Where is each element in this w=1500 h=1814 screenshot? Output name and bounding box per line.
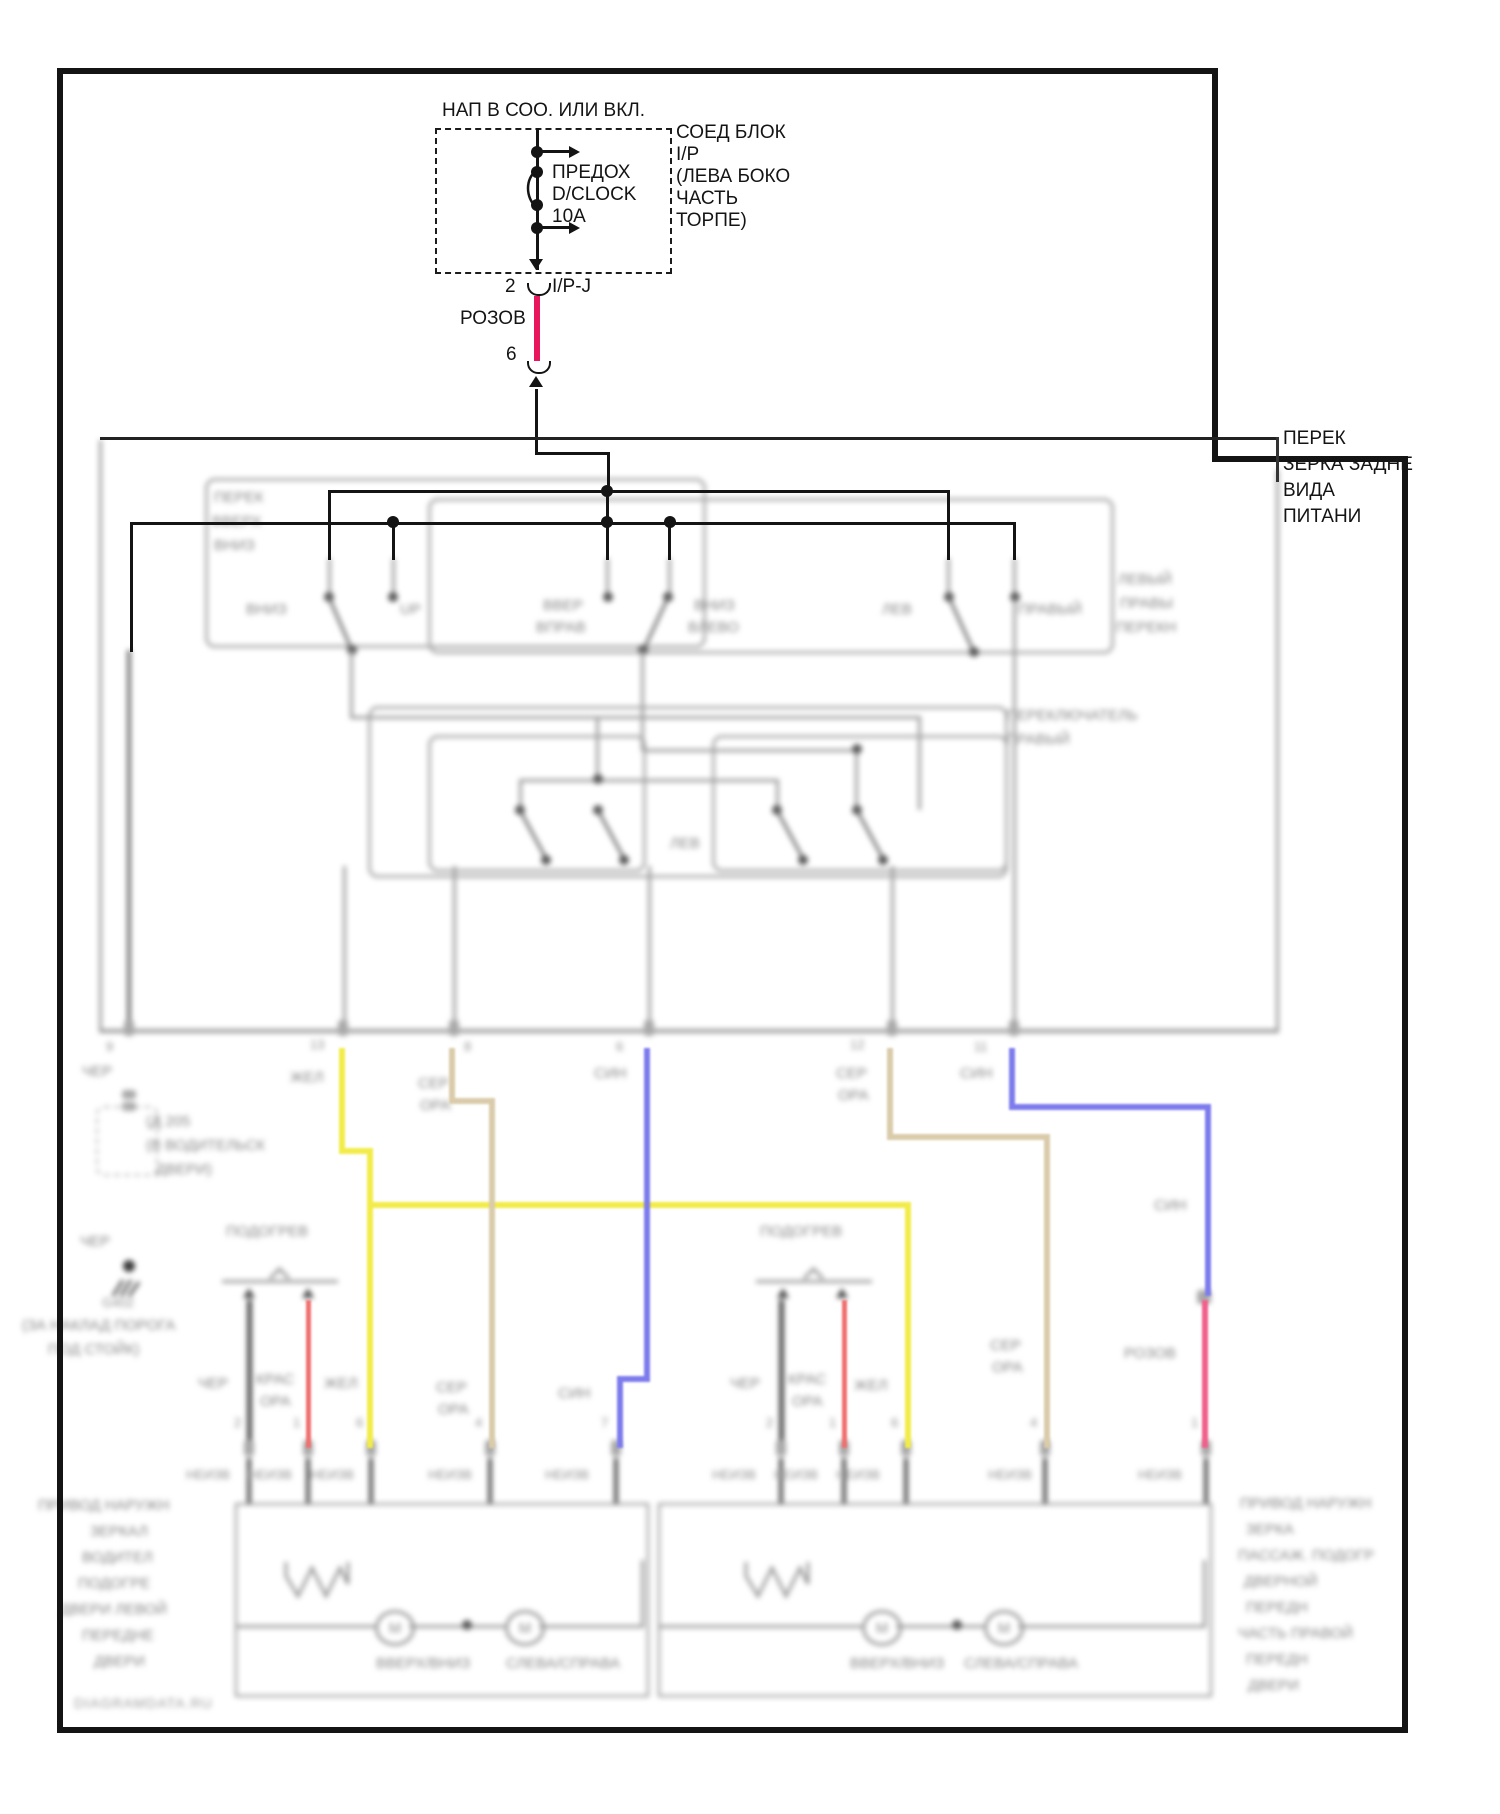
wiring-diagram-page: М М М М ПЕРЕКВВЕРХВНИЗВНИЗUPВВЕРВПРАВВНИ…	[0, 0, 1500, 1814]
fuse-icon	[523, 166, 541, 215]
page-border	[1402, 456, 1408, 1733]
bus-rail	[131, 522, 1015, 525]
splice-number: 6	[506, 344, 517, 365]
power-mirror-switch-label: ПЕРЕК	[1283, 428, 1346, 449]
junction-block-label: (ЛЕВА БОКО	[676, 166, 790, 187]
fuse-label: ПРЕДОХ	[552, 162, 630, 183]
fuse-label: D/CLOCK	[552, 184, 636, 205]
junction	[531, 146, 543, 158]
sharp-layer: НАП В СОО. ИЛИ ВКЛ. СОЕД БЛОК I/P (ЛЕВА …	[0, 0, 1500, 1814]
page-border	[57, 68, 63, 1733]
connector-symbol	[527, 283, 551, 296]
pin-number: 2	[505, 276, 516, 297]
wire-black	[130, 522, 133, 652]
wire-color-label: РОЗОВ	[460, 308, 526, 329]
switch-box-edge	[1276, 437, 1279, 482]
arrow-down-icon	[529, 259, 543, 270]
junction-block-label: I/P	[676, 144, 699, 165]
connector-name: I/P-J	[552, 276, 591, 297]
wire-black	[535, 452, 610, 455]
bus-rail	[329, 490, 949, 493]
connector-symbol	[527, 361, 551, 374]
fuse-label: 10A	[552, 206, 586, 227]
junction-block-label: ТОРПЕ)	[676, 210, 747, 231]
arrow-right-icon	[569, 146, 580, 158]
junction	[531, 222, 543, 234]
junction-block-label: ЧАСТЬ	[676, 188, 738, 209]
acc-on-note: НАП В СОО. ИЛИ ВКЛ.	[442, 100, 645, 121]
page-border	[1212, 68, 1218, 462]
wire-black	[392, 522, 395, 560]
wire-black	[328, 490, 331, 560]
wire-black	[947, 490, 950, 560]
wire-black	[606, 493, 609, 560]
switch-box-top	[100, 437, 1278, 440]
power-mirror-switch-label: ВИДА	[1283, 480, 1335, 501]
wire-black	[1013, 522, 1016, 560]
wire-black	[668, 522, 671, 560]
power-mirror-switch-label: ПИТАНИ	[1283, 506, 1361, 527]
junction-block-label: СОЕД БЛОК	[676, 122, 786, 143]
page-border	[57, 1727, 1408, 1733]
power-mirror-switch-label: ЗЕРКА ЗАДНЕ	[1283, 454, 1413, 475]
arrow-up-icon	[529, 376, 543, 387]
wire-black	[535, 389, 538, 454]
page-border	[57, 68, 1218, 74]
